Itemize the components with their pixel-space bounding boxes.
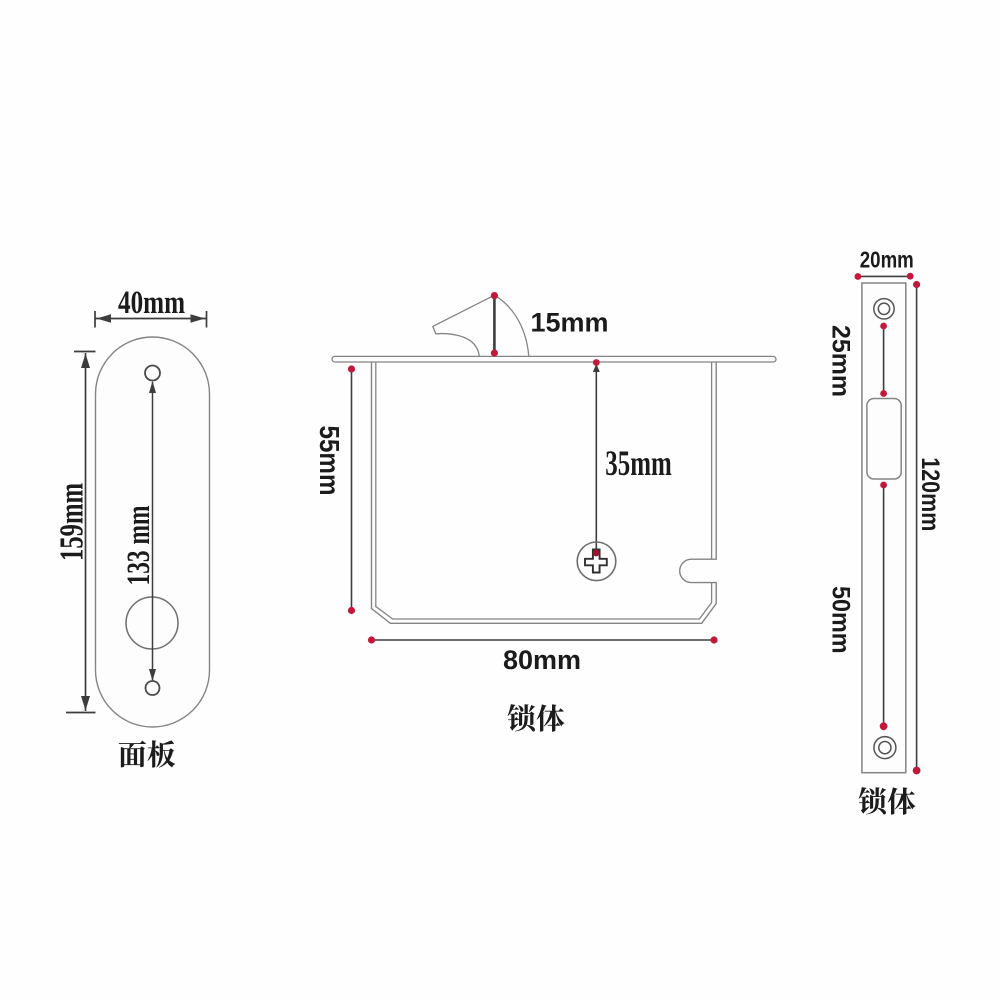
svg-text:133 mm: 133 mm	[121, 506, 157, 586]
svg-text:120mm: 120mm	[916, 457, 944, 531]
svg-text:159mm: 159mm	[54, 483, 91, 561]
svg-text:35mm: 35mm	[605, 443, 672, 483]
svg-text:80mm: 80mm	[503, 645, 581, 675]
svg-text:40mm: 40mm	[118, 285, 185, 321]
svg-text:20mm: 20mm	[860, 247, 914, 273]
svg-text:50mm: 50mm	[827, 586, 855, 654]
svg-text:25mm: 25mm	[827, 325, 855, 397]
svg-text:55mm: 55mm	[314, 426, 345, 496]
svg-text:15mm: 15mm	[531, 308, 609, 338]
